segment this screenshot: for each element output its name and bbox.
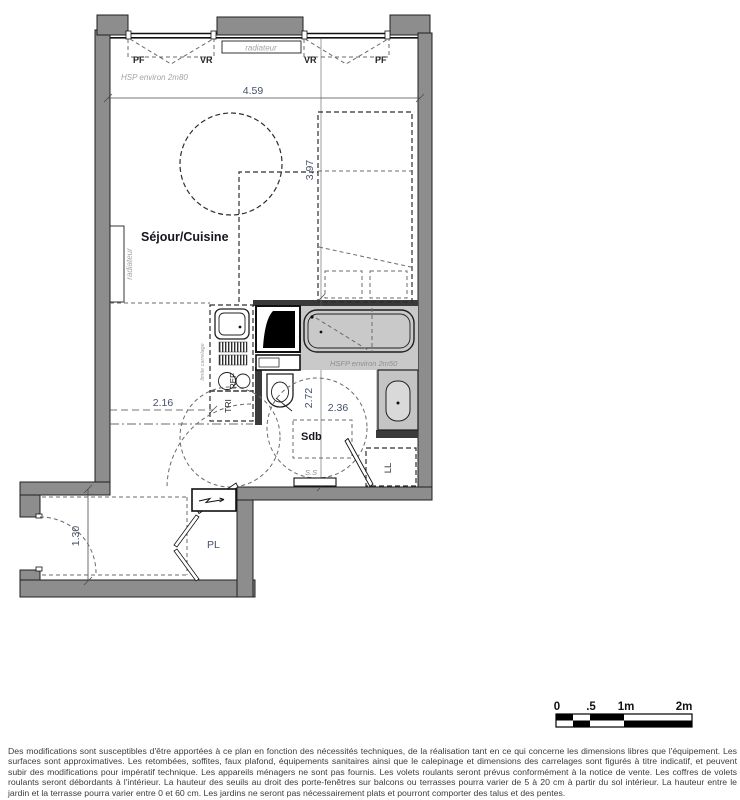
washing-machine: LL — [366, 448, 416, 486]
cooktop-upper — [219, 342, 247, 352]
duct-box — [256, 306, 300, 352]
bedside-left — [325, 271, 362, 298]
washbasin — [378, 370, 418, 430]
zone-boundary-dashed — [239, 172, 318, 302]
bathroom-door-leaf — [345, 439, 373, 487]
wall-under-basin — [376, 430, 418, 438]
entry-clear-zone — [42, 497, 187, 575]
label-washing-machine: LL — [383, 463, 394, 474]
fridge-circle-right — [236, 374, 250, 388]
floor-plan-page: PF VR VR PF radiateur HSP environ 2m80 4… — [0, 0, 740, 800]
label-pf-left: PF — [133, 55, 145, 65]
bathtub-tap — [310, 315, 313, 318]
label-vr-right: VR — [304, 55, 317, 65]
dim-bath-width: 2.36 — [328, 402, 349, 414]
label-false-ceiling-height: HSFP environ 2m50 — [330, 359, 398, 368]
label-bathroom: Sdb — [301, 431, 322, 443]
label-living-room: Séjour/Cuisine — [141, 230, 229, 244]
wall-top-center-pillar — [217, 17, 303, 35]
sink-tap — [239, 326, 242, 329]
hall-door-swing — [167, 404, 251, 487]
dim-living-depth: 3.97 — [304, 160, 316, 181]
radiator-top: radiateur — [222, 41, 301, 53]
wall-entry-left-lower — [20, 570, 40, 580]
wall-entry-top — [20, 482, 110, 495]
dim-living-width: 4.59 — [243, 85, 264, 97]
scale-tick-1m: 1m — [618, 701, 635, 713]
dim-bath-depth: 2.72 — [303, 388, 315, 409]
scale-bar: 0 .5 1m 2m — [554, 701, 693, 727]
label-radiator-top: radiateur — [245, 44, 277, 53]
wall-bottom — [237, 487, 432, 500]
label-closet: PL — [207, 539, 220, 551]
label-vr-left: VR — [200, 55, 213, 65]
wall-bottom-left — [20, 580, 255, 597]
bedside-right — [370, 271, 407, 298]
label-pf-right: PF — [375, 55, 387, 65]
label-ceiling-height: HSP environ 2m80 — [121, 73, 188, 82]
wall-top-left-block — [97, 15, 128, 35]
bathroom: HSFP environ 2m50 Sdb S.S LL — [256, 306, 418, 487]
bed-symbol — [318, 112, 412, 302]
table-symbol — [180, 113, 282, 215]
label-towel-dryer: S.S — [305, 468, 317, 477]
label-fridge: REF — [229, 373, 238, 389]
label-tile-limit: limite carrelage — [200, 343, 206, 380]
kitchen: REF TRI limite carrelage — [200, 305, 253, 421]
disclaimer-text: Des modifications sont susceptibles d'êt… — [8, 746, 737, 798]
entry-door-jamb-bottom — [36, 567, 42, 571]
bathtub — [304, 308, 414, 352]
cooktop-lower — [219, 355, 247, 365]
closet-shelf — [192, 489, 236, 511]
bed-diagonal — [319, 247, 411, 267]
wall-closet-right — [237, 497, 253, 597]
scale-tick-2m: 2m — [676, 701, 693, 713]
floor-plan-drawing: PF VR VR PF radiateur HSP environ 2m80 4… — [0, 0, 740, 800]
duct-shelf — [256, 355, 300, 370]
bathtub-drain — [320, 331, 323, 334]
scale-tick-0: 0 — [554, 701, 560, 713]
label-waste-sorting: TRI — [223, 399, 233, 413]
kitchen-sink — [215, 309, 249, 339]
towel-dryer: S.S — [294, 468, 336, 486]
dim-kitchen-width: 2.16 — [153, 397, 174, 409]
wall-right — [418, 33, 432, 500]
label-radiator-left: radiateur — [125, 248, 134, 280]
toilet — [267, 374, 293, 411]
wall-bathroom-left — [255, 367, 262, 425]
wall-top-right-block — [390, 15, 430, 35]
bed-area — [318, 112, 412, 302]
dim-entry-width: 1.30 — [70, 526, 82, 547]
radiator-left — [110, 226, 124, 302]
scale-tick-half: .5 — [586, 701, 596, 713]
